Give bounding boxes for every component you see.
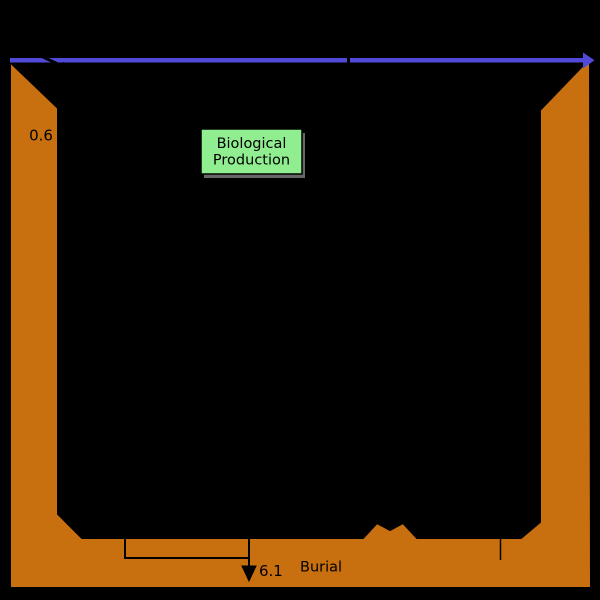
biological-production-box: Biological Production — [201, 129, 305, 178]
biological-production-label-line2: Production — [213, 153, 290, 169]
diagram-background — [0, 0, 600, 600]
burial-label: Burial — [300, 560, 342, 576]
ocean-cycle-diagram: 0.6 Biological Production 6.1 Burial — [0, 0, 600, 600]
surface-line — [10, 58, 584, 63]
biological-production-label-line1: Biological — [217, 136, 287, 152]
burial-flux-label: 6.1 — [259, 562, 283, 580]
shelf-flux-label: 0.6 — [29, 127, 53, 145]
diagram-canvas: 0.6 Biological Production 6.1 Burial — [0, 0, 600, 600]
